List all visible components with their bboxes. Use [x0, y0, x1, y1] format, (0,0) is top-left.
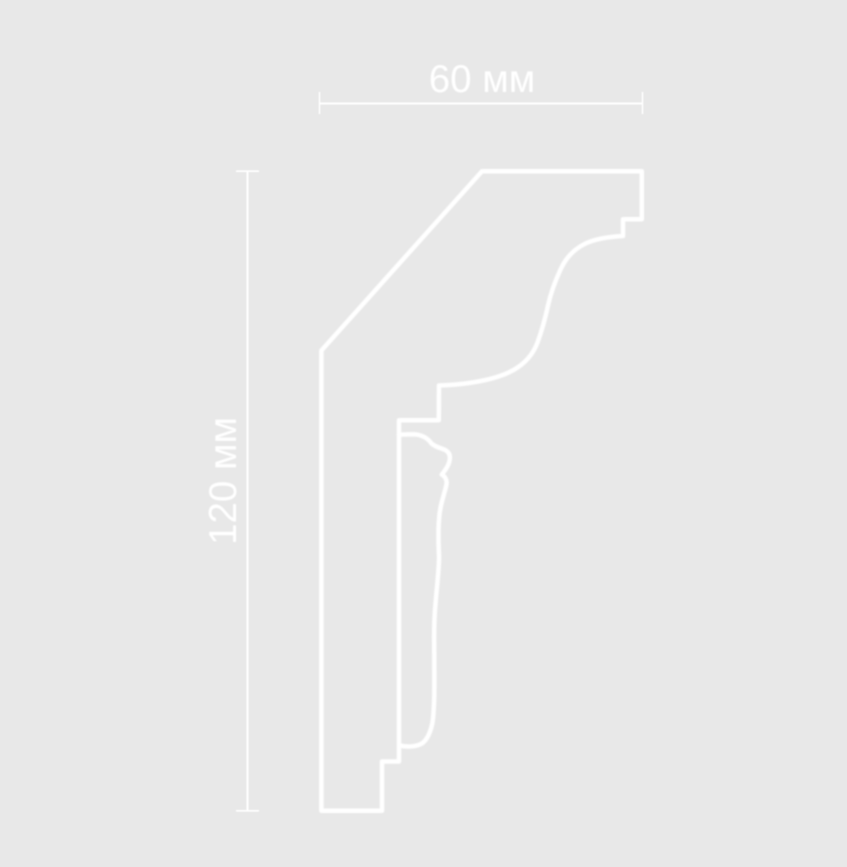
svg-text:60 мм: 60 мм — [429, 58, 535, 101]
svg-text:120 мм: 120 мм — [202, 417, 245, 545]
